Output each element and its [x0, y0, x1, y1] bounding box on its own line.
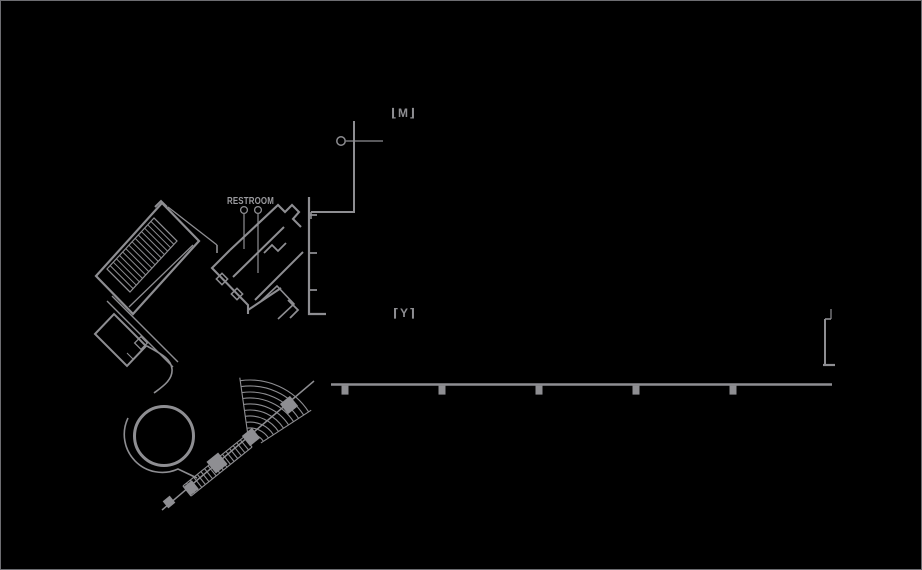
floorplan-canvas[interactable]: ⌊M⌋ ⌈Y⌉ RESTROOM: [0, 0, 922, 570]
upper-marker-icon[interactable]: ⌊M⌋: [391, 106, 416, 120]
restroom-label: RESTROOM: [227, 196, 274, 207]
left-wing: [96, 201, 217, 314]
annex: [95, 296, 178, 367]
platform-ticks: [342, 386, 737, 395]
circular-plaza: [135, 407, 194, 466]
platform-edge: [331, 385, 832, 395]
floorplan-drawing: ⌊M⌋ ⌈Y⌉ RESTROOM: [1, 1, 922, 570]
pole-flag-circle: [337, 137, 345, 145]
middle-marker-icon[interactable]: ⌈Y⌉: [393, 306, 416, 320]
wall-bracket: [823, 309, 835, 365]
stair-hatch-icon: [107, 218, 177, 292]
building-right-wall: [309, 197, 326, 314]
site-pole: [311, 121, 383, 219]
restroom-leaders: [241, 207, 262, 273]
curved-path: [124, 346, 197, 478]
